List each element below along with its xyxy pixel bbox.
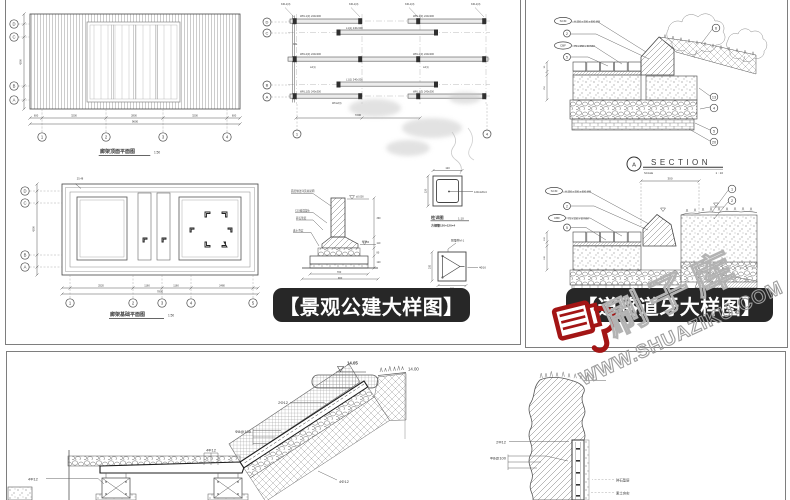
grid-bubble-label: 5 [566, 55, 568, 59]
grass-symbols [686, 207, 752, 212]
steps-section-drawing: 14.05 14.00 [8, 361, 419, 500]
grid-bubble-label: 13 [712, 95, 716, 99]
cad-label: 110 [377, 242, 381, 245]
framing-plan-drawing: DCBA 14 KZL1(3)KZL1(3)KZL1(3)KZL1(3) WKL… [263, 2, 491, 174]
grid-bubble-label: 5 [566, 226, 568, 230]
cad-label: L1(1) 240x300 [346, 78, 363, 82]
cad-label: 7800 [157, 290, 164, 294]
tube-callout: 120x120x4 [474, 190, 487, 194]
cad-sheet-collage: 廊架顶面平面图 1:50 DCBA 1234 60032002800320060… [0, 0, 790, 500]
grid-bubble-label: B [13, 84, 16, 89]
grid-bubble-label: D [266, 19, 269, 24]
cad-label: 2Φ12 [496, 440, 507, 445]
cad-label: Φ8@100 [490, 456, 507, 461]
cad-label: WKL1(3) 240x300 [300, 14, 321, 18]
cad-label: 390 [377, 217, 382, 220]
banner-road-details: 【道路道牙大样图】 [566, 288, 773, 322]
base-plan-drawing: 廊架基础平面图 1:50 DCBA 12345 2520116011602480… [21, 177, 260, 319]
cad-label: 碎石垫层 [616, 478, 630, 483]
elevation-a: 14.05 [347, 361, 358, 366]
cad-label: 75 x 250 x 60 MM [574, 44, 595, 48]
grid-bubble-label: CBF [554, 216, 560, 220]
cad-label: L1(1) 240x300 [346, 26, 363, 30]
grid-bubble-label: CBF [560, 44, 566, 48]
cad-label: 1160 [144, 284, 150, 288]
tube-title: 柱详图 [431, 214, 444, 221]
cad-label: 250 [544, 85, 546, 89]
cad-label: 900 [338, 276, 343, 280]
section-ref: A [632, 162, 636, 168]
wall-section-drawing: 2Φ12Φ8@100碎石垫层素土夯实 [490, 371, 630, 500]
cad-label: KZL1(3) [281, 2, 291, 6]
embed-dim-left: 200 [428, 264, 431, 269]
deck-plan-drawing: 廊架顶面平面图 1:50 DCBA 1234 60032002800320060… [10, 13, 242, 156]
cad-label: WKL1(3) 240x300 [413, 14, 434, 18]
road-section-a-drawing: A SECTION SCALE 1 : 10 SCM2CBF5 6134520 … [544, 14, 767, 175]
cad-label: -0.450 [362, 241, 370, 244]
banner-landscape-label: 【景观公建大样图】 [279, 291, 464, 320]
cad-label: 1160 [173, 284, 179, 288]
cad-label: 2520 [98, 284, 104, 288]
cad-label: 4Φ12 [206, 448, 217, 453]
cad-label: 600 [232, 114, 237, 118]
grid-bubble-label: B [266, 82, 269, 87]
tube-subtitle: 方钢管120×120×4 [431, 223, 456, 228]
cad-label: 700 [337, 270, 342, 274]
grid-bubble-label: 4 [713, 106, 715, 110]
kerb-top-dim: 300 [667, 177, 672, 181]
cad-label: KZL1(3) [349, 2, 359, 6]
cad-label: 3200 [71, 114, 77, 118]
grid-bubble-label: 6 [715, 26, 717, 30]
cad-label: 2800 [131, 114, 137, 118]
grid-bubble-label: 1 [731, 187, 733, 191]
grid-bubble-label: SCM [551, 189, 558, 193]
grid-bubble-label: D [12, 22, 15, 27]
cad-label: 75 x 250 x 60 MM [568, 216, 589, 220]
cad-label: WKL2(3) 240x300 [300, 52, 321, 56]
grid-bubble-label: C [266, 30, 269, 35]
cad-label: L2(1) [423, 66, 429, 69]
tube-detail-drawing: 120x120x4 120 120 柱详图 1:10 方钢管120×120×4 [423, 166, 487, 228]
cad-label: 9600 [132, 120, 139, 124]
base-plan-title: 廊架基础平面图 [110, 311, 145, 318]
tube-dim-left: 120 [423, 188, 427, 193]
cad-label: 面层做法详见总说明 [291, 189, 315, 193]
cad-label: WKL1(3) 240x300 [300, 90, 321, 94]
grid-bubble-label: D [23, 189, 26, 194]
cad-label: KZ1 [293, 43, 298, 46]
cad-label: Φ8@100 [235, 429, 252, 434]
cad-label: KZL1(3) [471, 2, 481, 6]
grid-bubble-label: 5 [713, 129, 715, 133]
embed-label-top: 预埋件M-1 [451, 239, 465, 243]
cad-label: 素土夯实 [293, 229, 304, 233]
cad-label: 120 [377, 261, 382, 264]
cad-label: 2Φ12 [278, 400, 289, 405]
cad-label: 100 [544, 236, 546, 240]
base-plan-scale: 1:50 [168, 314, 174, 318]
grid-bubble-label: A [266, 94, 269, 99]
cad-label: 4Φ12 [28, 477, 39, 482]
cad-label: WKL2(3) 240x300 [413, 52, 434, 56]
footing-detail-drawing: 面层做法详见总说明C15素混凝土碎石垫层素土夯实 390110801207009… [291, 189, 381, 281]
grid-bubble-label: C [23, 201, 26, 206]
cad-label: 3200 [192, 114, 198, 118]
embed-label-right: 4Φ16 [479, 266, 486, 270]
section-title-block: A SECTION SCALE 1 : 10 [627, 157, 723, 175]
deck-plan-scale: 1:50 [154, 151, 160, 155]
cad-label: H 250 x 300 x 600 MM [565, 189, 591, 193]
cad-linework: 廊架顶面平面图 1:50 DCBA 1234 60032002800320060… [0, 0, 790, 500]
cad-label: 240 [544, 255, 546, 259]
cad-label: KZL1(3) [405, 2, 415, 6]
grid-bubble-label: 2 [731, 199, 733, 203]
road-section-b-drawing: 300 [544, 177, 757, 296]
tube-dim-top: 120 [445, 166, 450, 170]
cad-label: C15素混凝土 [295, 209, 311, 213]
cad-label: 7200 [355, 113, 362, 117]
cad-label: H 250 x 300 x 600 MM [574, 19, 600, 23]
cad-label: 25.48 [77, 177, 84, 181]
embed-detail-drawing: 预埋件M-1 4Φ16 200 280 [428, 239, 486, 291]
cad-label: 80 [377, 252, 380, 255]
grid-bubble-label: A [13, 98, 16, 103]
cad-label: WKL2(3) [332, 102, 342, 105]
grid-bubble-label: 20 [712, 140, 716, 144]
grid-bubble-label: A [24, 265, 27, 270]
cad-label: 90 [544, 65, 546, 68]
grid-bubble-label: C [12, 35, 15, 40]
cad-label: 素土夯实 [616, 491, 630, 496]
cad-label: L2(1) [310, 66, 316, 69]
section-scale-label: SCALE [644, 171, 653, 175]
faded-smudges [349, 92, 481, 156]
cad-label: WKL1(3) 240x300 [413, 90, 434, 94]
grid-bubble-label: 2 [566, 32, 568, 36]
cad-label: 4200 [32, 226, 36, 232]
tube-scale: 1:10 [458, 216, 464, 220]
banner-road-label: 【道路道牙大样图】 [577, 291, 762, 320]
elevation-b: 14.00 [408, 367, 419, 372]
paver-blocks [573, 62, 641, 71]
cad-label: 4200 [19, 59, 23, 65]
grass-symbols [380, 366, 404, 372]
deck-plan-title: 廊架顶面平面图 [100, 148, 135, 155]
cad-label: 2480 [219, 284, 225, 288]
banner-landscape-details: 【景观公建大样图】 [273, 288, 470, 322]
grid-bubble-label: B [24, 253, 27, 258]
cad-label: 600 [34, 114, 39, 118]
grid-bubble-label: 2 [566, 204, 568, 208]
cad-label: 碎石垫层 [296, 216, 307, 220]
cad-label: 4Φ12 [339, 479, 350, 484]
section-title: SECTION [651, 158, 711, 167]
section-scale-value: 1 : 10 [715, 171, 723, 175]
grid-bubble-label: SCM [560, 19, 567, 23]
beams [288, 19, 488, 98]
cad-label: ±0.000 [356, 196, 364, 199]
